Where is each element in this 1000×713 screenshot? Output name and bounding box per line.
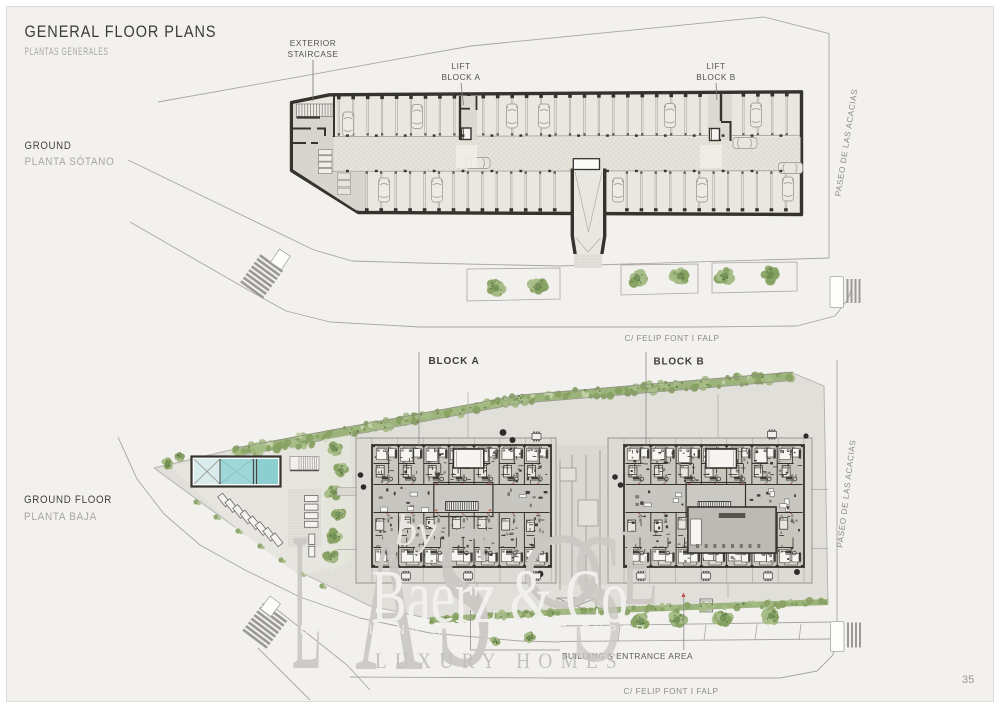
svg-text:GENERAL FLOOR PLANS: GENERAL FLOOR PLANS: [25, 23, 217, 41]
svg-text:GROUND FLOOR: GROUND FLOOR: [24, 494, 112, 506]
svg-text:BARCELONA REAL ESTATE EXPERTS: BARCELONA REAL ESTATE EXPERTS: [300, 623, 676, 637]
svg-text:LIFT: LIFT: [451, 61, 470, 71]
svg-text:L: L: [292, 492, 322, 708]
svg-text:EXTERIOR: EXTERIOR: [290, 38, 336, 48]
svg-text:PLANTA SÓTANO: PLANTA SÓTANO: [25, 155, 115, 168]
svg-text:LIFT: LIFT: [706, 61, 725, 71]
svg-text:BLOCK A: BLOCK A: [429, 356, 480, 367]
svg-text:BLOCK B: BLOCK B: [654, 357, 705, 368]
svg-text:C/ FELIP FONT I FALP: C/ FELIP FONT I FALP: [625, 334, 720, 343]
svg-text:PLANTAS GENERALES: PLANTAS GENERALES: [25, 46, 109, 58]
svg-text:GROUND: GROUND: [25, 140, 72, 152]
svg-text:BLOCK A: BLOCK A: [441, 72, 480, 82]
svg-text:C/ FELIP FONT I FALP: C/ FELIP FONT I FALP: [624, 687, 719, 696]
svg-text:STAIRCASE: STAIRCASE: [288, 49, 339, 59]
svg-text:LUXURY HOMES: LUXURY HOMES: [375, 648, 625, 673]
svg-text:35: 35: [962, 674, 974, 686]
svg-text:by: by: [395, 506, 437, 555]
svg-text:PLANTA BAJA: PLANTA BAJA: [24, 511, 97, 523]
svg-text:BLOCK B: BLOCK B: [696, 72, 735, 82]
